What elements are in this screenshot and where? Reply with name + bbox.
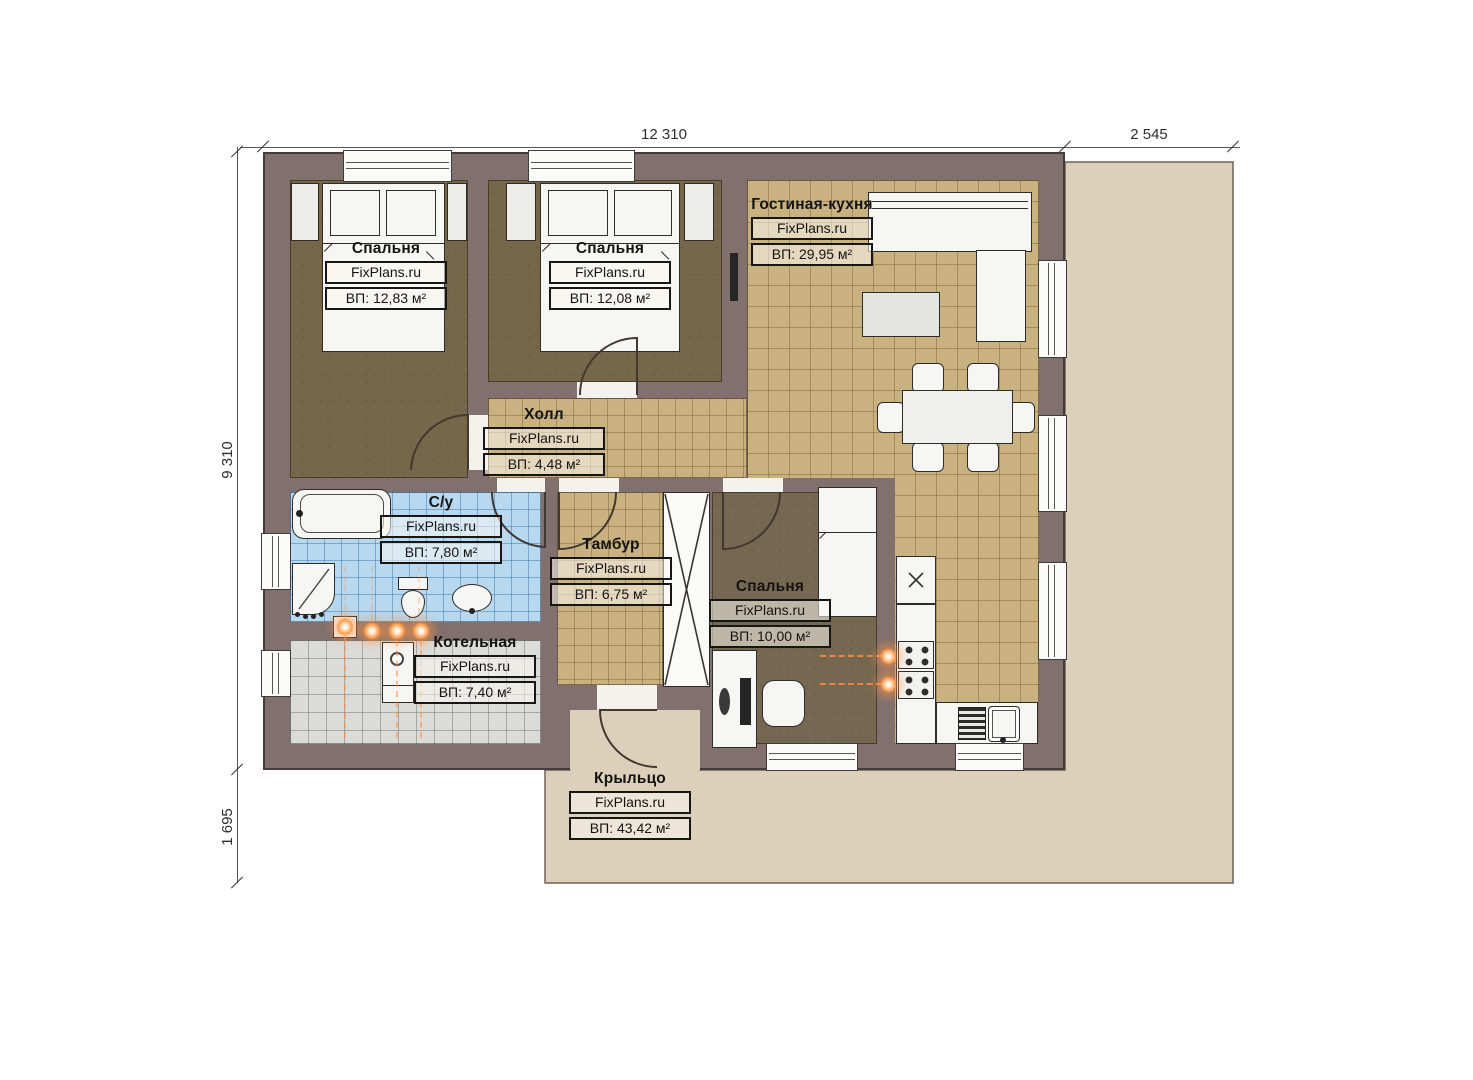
window-bedroom1: [343, 150, 452, 182]
heat-pipe-line: [344, 636, 346, 738]
area-box: ВП: 7,80 м²: [380, 541, 502, 564]
heat-valve-glow: [880, 648, 897, 665]
shower-foot: [295, 612, 300, 617]
pillow: [548, 190, 608, 236]
room-name: Крыльцо: [569, 770, 691, 788]
speaker: [719, 688, 730, 715]
room-name: Спальня: [709, 578, 831, 596]
bathtub-faucet: [296, 510, 303, 517]
pillow: [614, 190, 672, 236]
shower-foot: [303, 614, 308, 619]
room-name: Гостиная-кухня: [751, 196, 873, 214]
brand-box: FixPlans.ru: [709, 599, 831, 622]
heat-valve-glow: [336, 618, 354, 636]
heat-valve-glow: [880, 676, 897, 693]
window-boiler: [261, 650, 291, 697]
shower-foot: [319, 612, 324, 617]
window-living-1: [1038, 260, 1067, 358]
brand-box: FixPlans.ru: [325, 261, 447, 284]
window-living-3: [1038, 562, 1067, 660]
window-bathroom: [261, 533, 291, 590]
pillow: [386, 190, 436, 236]
room-label-bedroom1: Спальня FixPlans.ru ВП: 12,83 м²: [325, 240, 447, 310]
drainboard: [958, 707, 986, 740]
area-box: ВП: 12,08 м²: [549, 287, 671, 310]
heat-pipe-line: [371, 566, 373, 620]
pillow: [330, 190, 380, 236]
room-label-tambour: Тамбур FixPlans.ru ВП: 6,75 м²: [550, 536, 672, 606]
nightstand: [684, 183, 714, 241]
heat-pipe-line: [396, 640, 398, 738]
shower-foot: [311, 614, 316, 619]
room-name: С/у: [380, 494, 502, 512]
kitchen-counter: [936, 702, 1038, 744]
window-bedroom3: [766, 743, 858, 771]
sofa-back-line: [872, 201, 1028, 202]
area-box: ВП: 10,00 м²: [709, 625, 831, 648]
room-label-boiler: Котельная FixPlans.ru ВП: 7,40 м²: [414, 634, 536, 704]
nightstand: [291, 183, 319, 241]
room-name: Котельная: [414, 634, 536, 652]
office-chair: [762, 680, 805, 727]
entrance-door-arc: [598, 706, 660, 770]
stove-burners: [898, 671, 934, 699]
area-box: ВП: 29,95 м²: [751, 243, 873, 266]
chair: [967, 442, 999, 472]
heat-pipe-line: [344, 566, 346, 620]
dimension-value-left-bottom: 1 695: [219, 792, 237, 862]
dimension-value-top-main: 12 310: [600, 126, 728, 143]
room-label-living-kitchen: Гостиная-кухня FixPlans.ru ВП: 29,95 м²: [751, 196, 873, 266]
sink-tap: [469, 608, 475, 614]
room-name: Тамбур: [550, 536, 672, 554]
brand-box: FixPlans.ru: [483, 427, 605, 450]
bedroom2-door-arc: [578, 336, 640, 398]
brand-box: FixPlans.ru: [549, 261, 671, 284]
brand-box: FixPlans.ru: [751, 217, 873, 240]
window-living-2: [1038, 415, 1067, 512]
toilet-tank: [398, 577, 428, 590]
boiler-divider: [382, 685, 414, 686]
room-label-bedroom2: Спальня FixPlans.ru ВП: 12,08 м²: [549, 240, 671, 310]
window-kitchen: [955, 743, 1024, 771]
fridge-x-icon: [907, 571, 925, 589]
heat-valve-glow: [363, 622, 381, 640]
dining-table: [902, 390, 1013, 444]
nightstand: [506, 183, 536, 241]
bedroom3-door-arc: [721, 490, 783, 552]
area-box: ВП: 12,83 м²: [325, 287, 447, 310]
dimension-line-left: [237, 147, 238, 883]
shower-diagonal: [292, 563, 335, 615]
tv: [730, 253, 738, 301]
heat-pipe-line: [820, 683, 882, 685]
room-name: Спальня: [549, 240, 671, 258]
floor-plan: Спальня FixPlans.ru ВП: 12,83 м² Спальня…: [0, 0, 1473, 1080]
chair: [912, 363, 944, 393]
coffee-table: [862, 292, 940, 337]
area-box: ВП: 6,75 м²: [550, 583, 672, 606]
window-bedroom2: [528, 150, 635, 182]
brand-box: FixPlans.ru: [414, 655, 536, 678]
heat-pipe-line: [418, 566, 420, 614]
room-label-bathroom: С/у FixPlans.ru ВП: 7,80 м²: [380, 494, 502, 564]
room-name: Спальня: [325, 240, 447, 258]
brand-box: FixPlans.ru: [550, 557, 672, 580]
heat-pipe-line: [820, 655, 882, 657]
room-label-hall: Холл FixPlans.ru ВП: 4,48 м²: [483, 406, 605, 476]
sofa-chaise: [976, 250, 1026, 342]
brand-box: FixPlans.ru: [380, 515, 502, 538]
brand-box: FixPlans.ru: [569, 791, 691, 814]
monitor: [740, 678, 751, 725]
dimension-line-top: [240, 147, 1240, 148]
bedroom1-door-arc: [408, 412, 470, 474]
area-box: ВП: 7,40 м²: [414, 681, 536, 704]
heat-valve-glow: [388, 622, 406, 640]
dimension-value-top-right: 2 545: [1099, 126, 1199, 143]
chair: [967, 363, 999, 393]
chair: [877, 402, 905, 433]
room-label-bedroom3: Спальня FixPlans.ru ВП: 10,00 м²: [709, 578, 831, 648]
chair: [912, 442, 944, 472]
area-box: ВП: 43,42 м²: [569, 817, 691, 840]
dimension-value-left-main: 9 310: [219, 425, 237, 495]
room-label-porch: Крыльцо FixPlans.ru ВП: 43,42 м²: [569, 770, 691, 840]
bathtub-inner: [300, 494, 384, 533]
room-name: Холл: [483, 406, 605, 424]
sofa-back-line: [872, 208, 1028, 209]
nightstand: [447, 183, 467, 241]
area-box: ВП: 4,48 м²: [483, 453, 605, 476]
stove-burners: [898, 641, 934, 669]
